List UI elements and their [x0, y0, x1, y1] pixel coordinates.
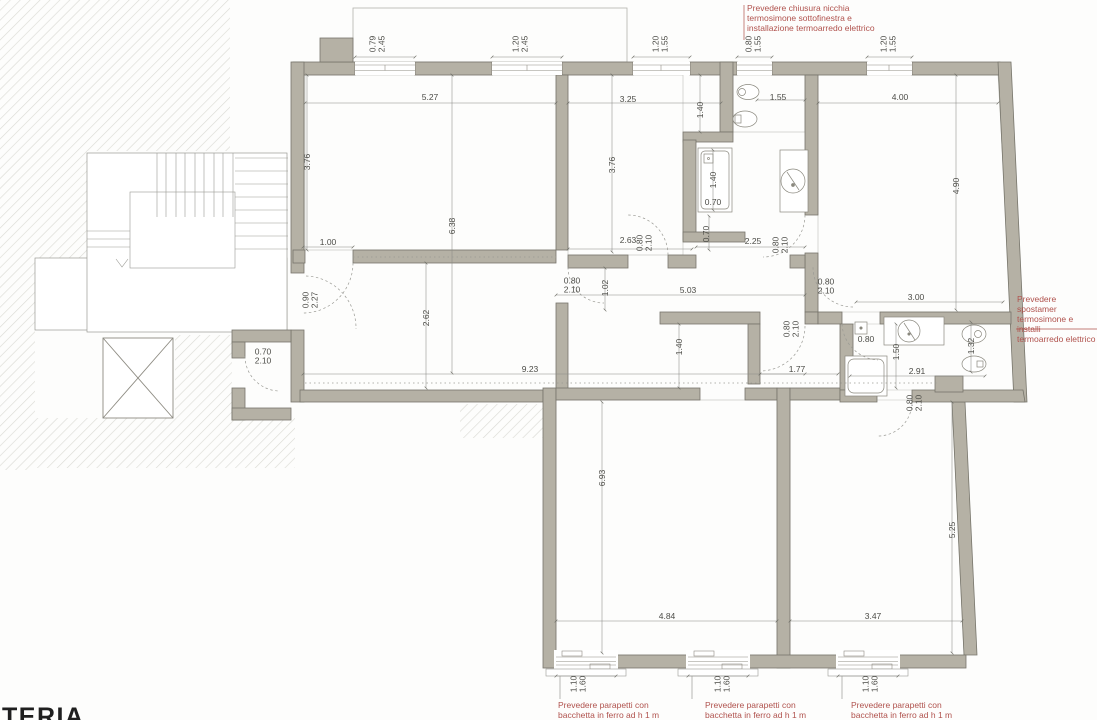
dimension-label: 0.80 — [858, 335, 875, 344]
dimension-label: 4.84 — [659, 612, 676, 621]
dimension-label: 2.91 — [909, 367, 926, 376]
dimension-label: 1.00 — [320, 238, 337, 247]
dimension-label: 1.10 1.60 — [570, 676, 587, 693]
dimension-label: 5.25 — [948, 522, 957, 539]
dimension-label: 0.70 — [705, 198, 722, 207]
walls — [232, 38, 1027, 668]
floor-plan-drawing — [0, 0, 1097, 720]
dimension-label: 3.47 — [865, 612, 882, 621]
dimension-label: 3.76 — [303, 154, 312, 171]
balcony-outline — [353, 8, 627, 62]
door-arcs — [245, 215, 912, 436]
bidet-icon — [733, 111, 757, 127]
dimension-label: 1.20 2.45 — [512, 36, 529, 53]
dimension-label: 1.20 1.55 — [880, 36, 897, 53]
washbasin-round-icon — [898, 320, 920, 342]
watermark-text: TERIA — [2, 703, 85, 720]
dimension-label: 0.70 2.10 — [255, 348, 272, 365]
parapet-note-2: Prevedere parapetti con bacchetta in fer… — [705, 700, 806, 720]
dimension-label: 4.90 — [952, 178, 961, 195]
dimension-label: 5.03 — [680, 286, 697, 295]
dimension-label: 5.27 — [422, 93, 439, 102]
dimension-label: 1.77 — [789, 365, 806, 374]
shower-box-icon — [855, 322, 867, 334]
dimension-label: 0.80 2.10 — [783, 321, 800, 338]
dimension-label: 6.93 — [598, 470, 607, 487]
dimension-label: 1.40 — [696, 102, 705, 119]
elevator-shaft — [103, 338, 173, 418]
dimension-label: 0.80 2.10 — [906, 395, 923, 412]
bidet-icon — [962, 356, 986, 372]
windows-bottom — [546, 650, 908, 676]
dimension-label: 6.38 — [448, 218, 457, 235]
dimension-label: 0.90 2.27 — [302, 292, 319, 309]
dimension-label: 3.76 — [608, 157, 617, 174]
dimension-label: 1.32 — [967, 338, 976, 355]
niche-note: Prevedere chiusura nicchia termosimone s… — [747, 3, 875, 33]
parapet-note-3: Prevedere parapetti con bacchetta in fer… — [851, 700, 952, 720]
washbasin-icon — [780, 150, 808, 212]
dimension-label: 1.50 — [892, 344, 901, 361]
dimension-label: 1.02 — [601, 280, 610, 297]
toilet-icon — [737, 85, 759, 100]
dimension-label: 0.80 2.10 — [818, 278, 835, 295]
dimension-label: 1.40 — [709, 172, 718, 189]
dimension-label: 1.10 1.60 — [862, 676, 879, 693]
dimension-label: 3.00 — [908, 293, 925, 302]
dimension-label: 2.25 — [745, 237, 762, 246]
dimension-label: 3.25 — [620, 95, 637, 104]
dimension-label: 0.80 2.10 — [564, 277, 581, 294]
radiator-move-note: Prevedere spostamer termosimone e instal… — [1017, 294, 1097, 344]
dimension-label: 9.23 — [522, 365, 539, 374]
dimension-label: 1.20 1.55 — [652, 36, 669, 53]
floor-plan-canvas: 0.79 2.451.20 2.451.20 1.550.80 1.551.20… — [0, 0, 1097, 720]
dimension-label: 0.70 — [702, 226, 711, 243]
dimension-label: 2.62 — [422, 310, 431, 327]
parapet-note-1: Prevedere parapetti con bacchetta in fer… — [558, 700, 659, 720]
dimension-label: 0.80 1.55 — [745, 36, 762, 53]
dimension-label: 1.55 — [770, 93, 787, 102]
dimension-lines — [303, 57, 1003, 676]
dimension-label: 0.80 2.10 — [636, 235, 653, 252]
dimension-label: 1.10 1.60 — [714, 676, 731, 693]
dimension-label: 4.00 — [892, 93, 909, 102]
dimension-label: 0.80 2.10 — [772, 237, 789, 254]
dimension-label: 1.40 — [675, 339, 684, 356]
dimension-label: 0.79 2.45 — [369, 36, 386, 53]
